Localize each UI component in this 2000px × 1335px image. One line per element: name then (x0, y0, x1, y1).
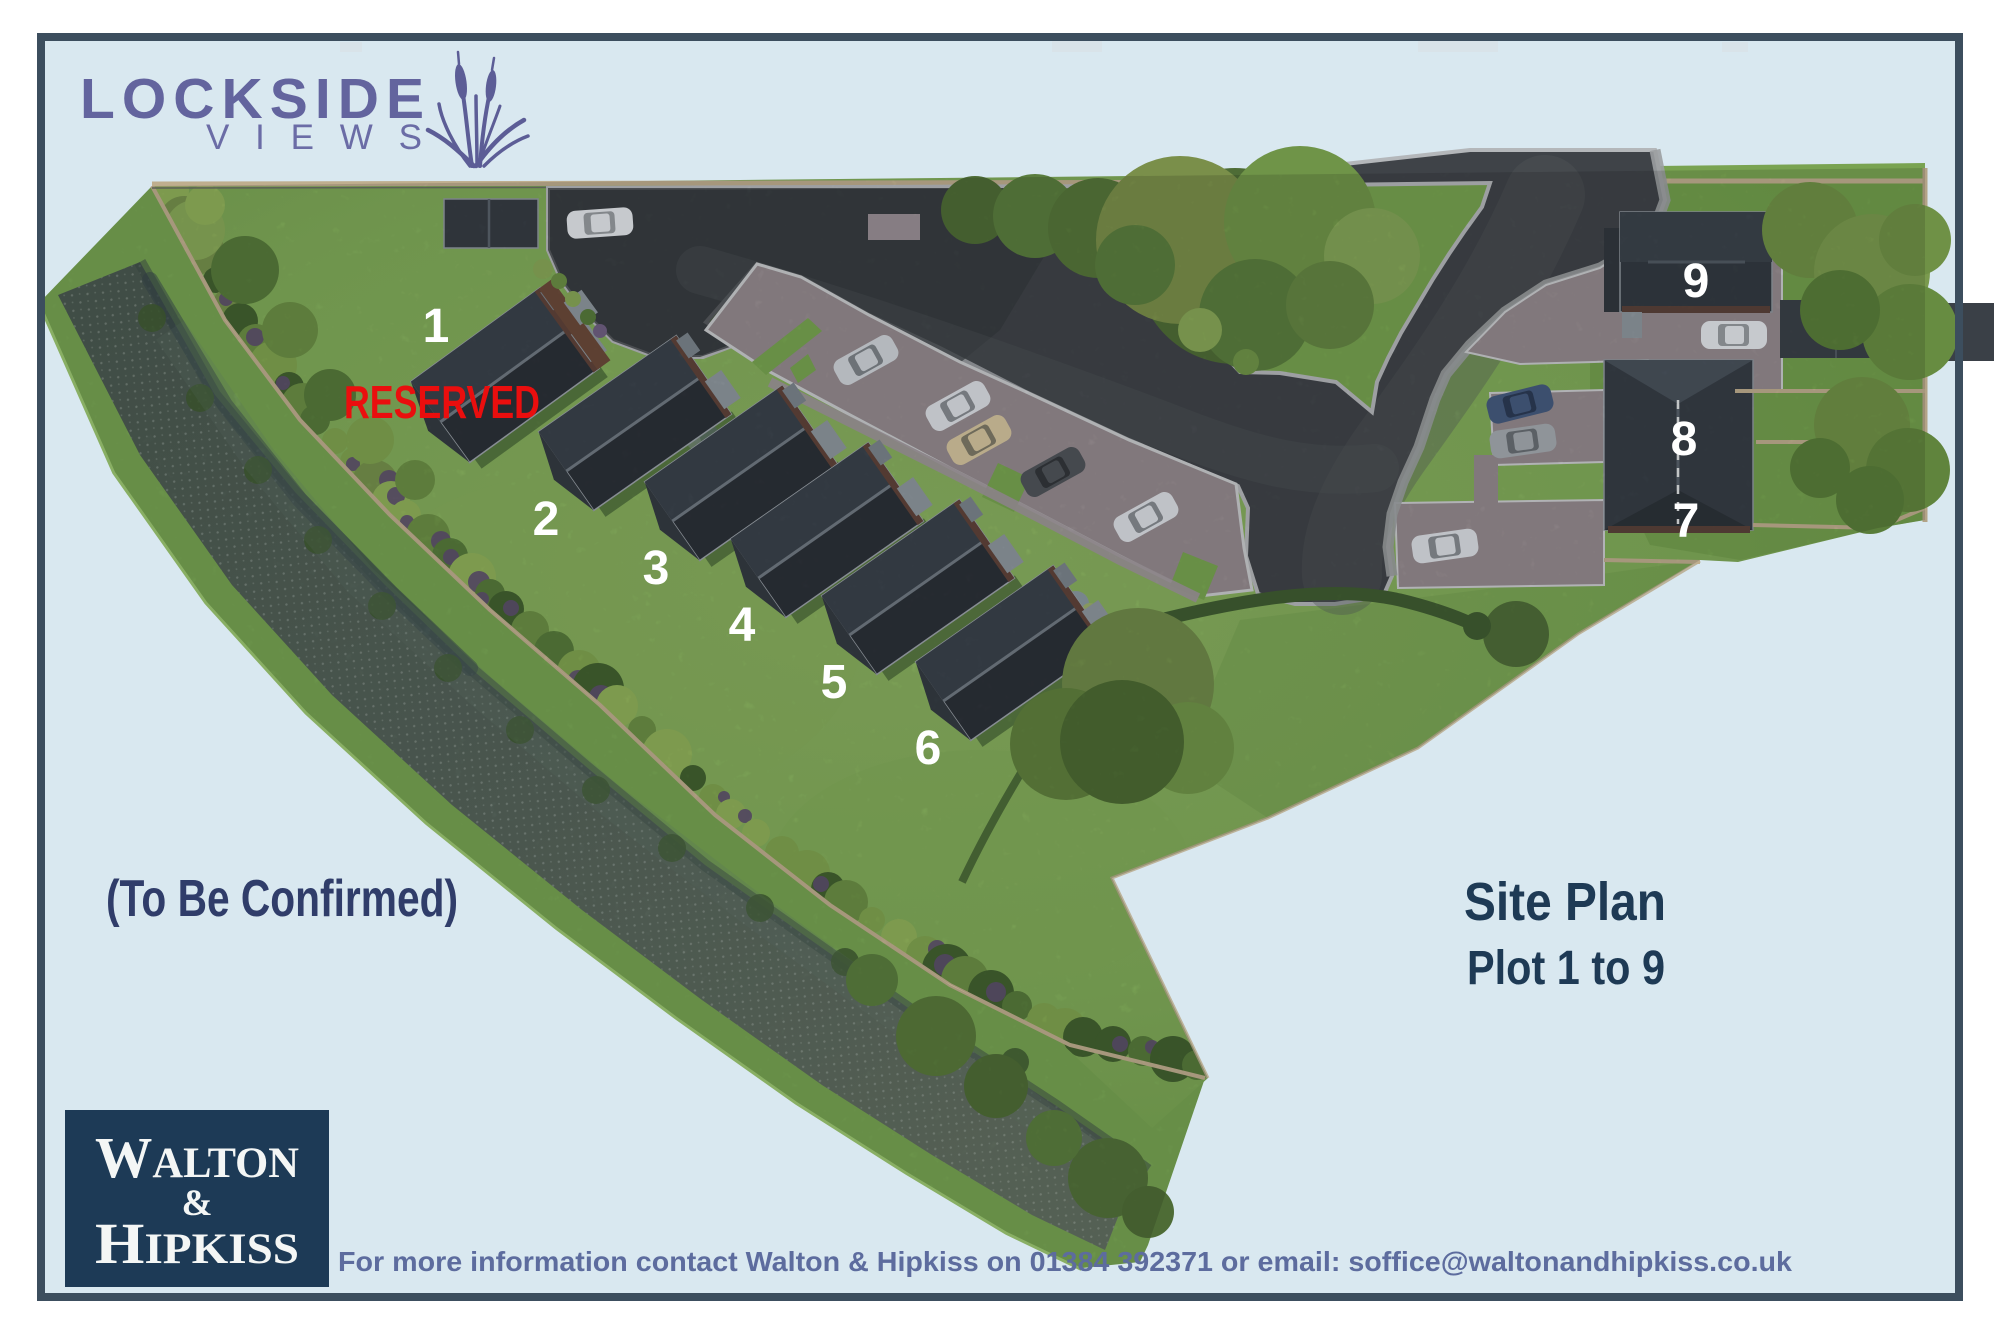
svg-text:&: & (182, 1183, 213, 1224)
svg-text:5: 5 (821, 656, 848, 709)
svg-text:3: 3 (643, 542, 670, 595)
svg-text:RESERVED: RESERVED (344, 376, 540, 428)
svg-text:8: 8 (1671, 413, 1698, 466)
svg-text:9: 9 (1683, 255, 1710, 308)
svg-text:Plot 1 to 9: Plot 1 to 9 (1467, 942, 1665, 995)
svg-text:2: 2 (533, 493, 560, 546)
svg-text:(To Be Confirmed): (To Be Confirmed) (106, 870, 458, 928)
svg-text:7: 7 (1673, 495, 1700, 548)
svg-text:For more information contact W: For more information contact Walton & Hi… (338, 1246, 1792, 1277)
svg-text:Site Plan: Site Plan (1464, 872, 1666, 932)
svg-text:6: 6 (915, 722, 942, 775)
svg-text:4: 4 (729, 599, 756, 652)
svg-text:1: 1 (423, 300, 450, 353)
